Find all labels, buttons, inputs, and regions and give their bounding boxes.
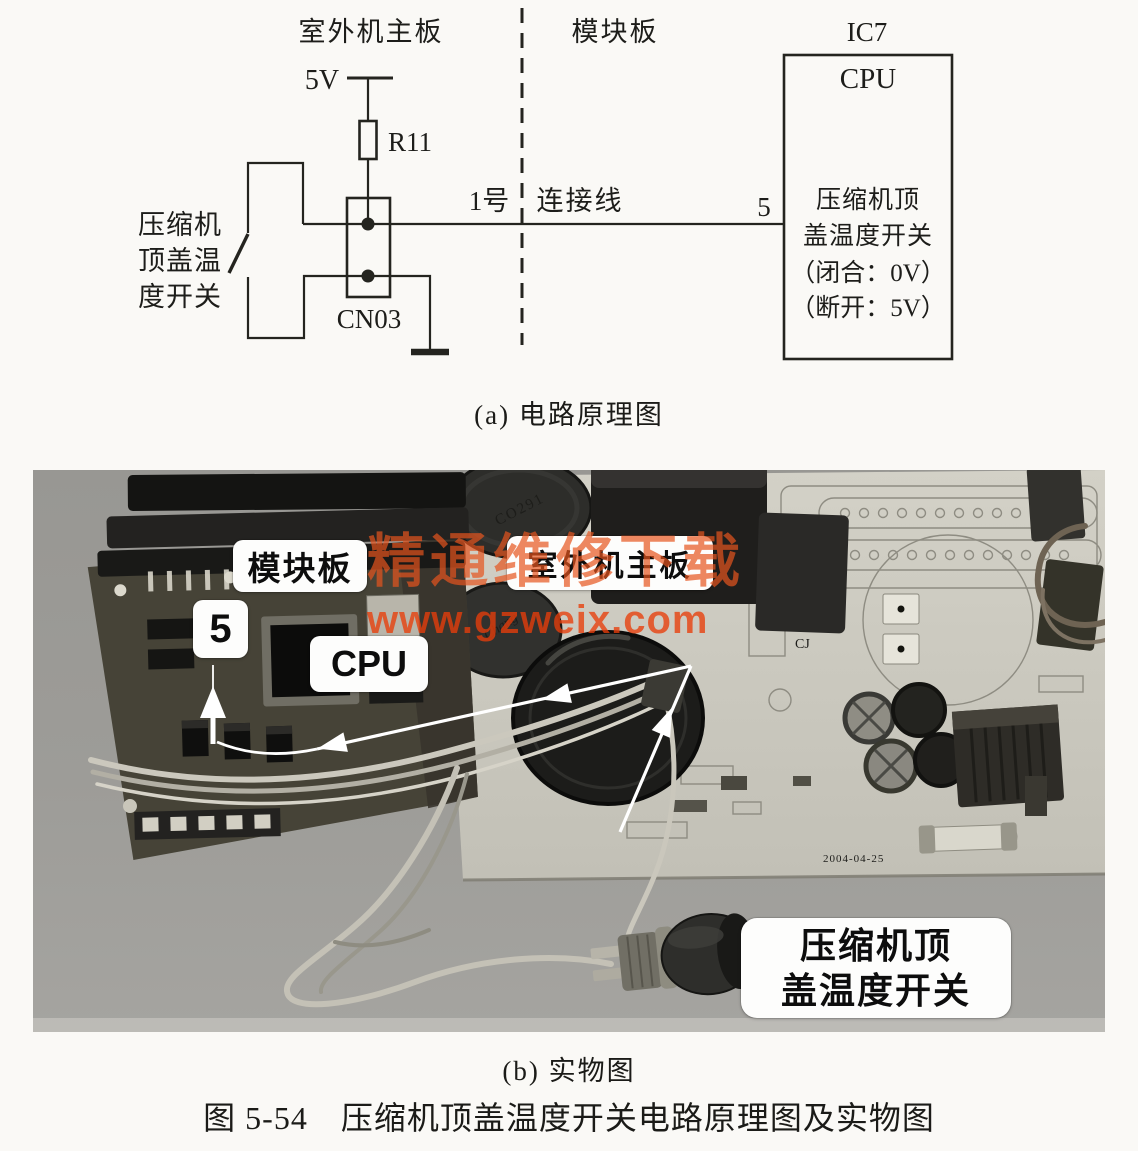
- wire-number-label: 1号: [469, 186, 510, 216]
- switch-name-line-3: 度开关: [138, 282, 222, 312]
- switch-label-line-2: 盖温度开关: [781, 968, 971, 1013]
- photo-label-module-board: 模块板: [233, 540, 367, 592]
- cpu-line-2: 盖温度开关: [803, 222, 933, 250]
- caption-schematic: (a) 电路原理图: [0, 393, 1138, 432]
- cn03-pin-top-dot: [362, 218, 375, 231]
- switch-top-wire: [248, 163, 303, 233]
- power-transformer: [952, 704, 1064, 807]
- wire-name-label: 连接线: [537, 186, 624, 216]
- module-board-region-label: 模块板: [572, 17, 659, 47]
- cpu-title: CPU: [840, 63, 896, 95]
- connector-cn03-label: CN03: [337, 304, 402, 334]
- pcb-photograph: CJ 2004-04-25 CO291 Chang: [33, 470, 1105, 1032]
- cpu-pin-number: 5: [757, 192, 771, 222]
- relay-block: [755, 512, 849, 633]
- photo-label-temperature-switch: 压缩机顶 盖温度开关: [741, 918, 1011, 1018]
- fuse: [919, 822, 1018, 853]
- switch-blade: [229, 234, 248, 273]
- switch-name-line-1: 压缩机: [138, 210, 222, 240]
- resistor-r11-label: R11: [388, 127, 432, 157]
- board-date-code: 2004-04-25: [823, 853, 884, 865]
- cpu-line-1: 压缩机顶: [816, 186, 920, 214]
- caption-photo: (b) 实物图: [0, 1049, 1138, 1088]
- photo-bottom-edge: [33, 1018, 1105, 1032]
- circuit-schematic: 室外机主板 模块板 IC7 5V R11 CN03 压缩机 顶盖温 度开关 1号…: [0, 0, 1138, 445]
- silkscreen-cj-marking: CJ: [795, 637, 810, 652]
- supply-5v-label: 5V: [305, 65, 339, 96]
- ic7-label: IC7: [847, 17, 888, 47]
- cpu-line-4: （断开：5V）: [790, 294, 946, 322]
- temperature-switch-photo: [588, 909, 761, 1006]
- switch-label-line-1: 压缩机顶: [800, 923, 952, 968]
- resistor-r11-symbol: [360, 121, 377, 159]
- cpu-line-3: （闭合：0V）: [790, 259, 946, 287]
- schematic-wires: [229, 8, 784, 352]
- switch-name-line-2: 顶盖温: [138, 246, 222, 276]
- photo-label-pin-5: 5: [193, 600, 248, 658]
- scanned-manual-page: 室外机主板 模块板 IC7 5V R11 CN03 压缩机 顶盖温 度开关 1号…: [0, 0, 1138, 1151]
- cn03-pin-bottom-dot: [362, 270, 375, 283]
- corner-connector: [1026, 470, 1085, 542]
- main-board-photo: CJ 2004-04-25 CO291 Chang: [439, 470, 1105, 880]
- photo-label-cpu: CPU: [310, 636, 428, 692]
- photo-label-main-board: 室外机主板: [507, 536, 713, 590]
- figure-caption: 图 5-54 压缩机顶盖温度开关电路原理图及实物图: [0, 1093, 1138, 1139]
- outdoor-board-region-label: 室外机主板: [299, 17, 444, 47]
